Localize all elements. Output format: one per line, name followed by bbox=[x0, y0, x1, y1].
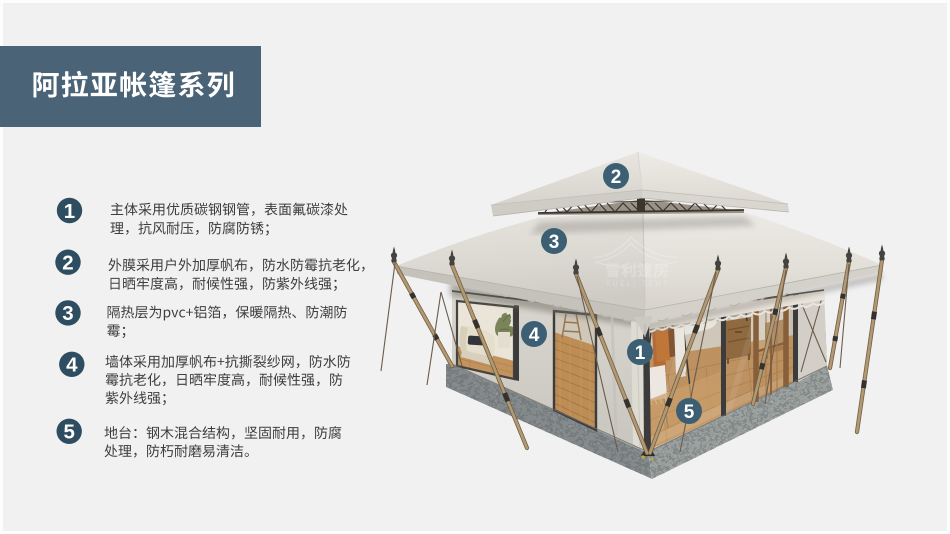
svg-text:2: 2 bbox=[62, 252, 73, 275]
svg-text:3: 3 bbox=[549, 232, 560, 253]
svg-text:5: 5 bbox=[684, 402, 695, 423]
svg-text:4: 4 bbox=[529, 325, 540, 346]
svg-text:4: 4 bbox=[66, 354, 78, 377]
svg-text:1: 1 bbox=[635, 343, 646, 364]
svg-text:3: 3 bbox=[62, 302, 73, 325]
svg-text:2: 2 bbox=[611, 167, 622, 188]
svg-text:1: 1 bbox=[64, 200, 75, 223]
svg-text:5: 5 bbox=[63, 421, 74, 444]
